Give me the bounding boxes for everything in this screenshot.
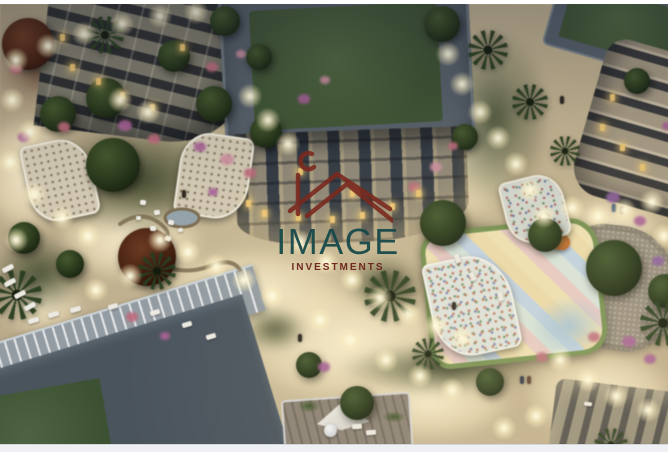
lit-window — [600, 124, 605, 131]
flower-bed — [160, 332, 170, 340]
tree — [158, 40, 190, 72]
pedestrian — [527, 376, 531, 384]
scene — [0, 4, 668, 444]
lit-window — [180, 44, 185, 51]
terrace-furniture — [366, 430, 376, 436]
lit-window — [640, 164, 645, 171]
path-light — [373, 347, 399, 373]
path-light — [337, 327, 363, 353]
flower-bed — [634, 216, 646, 226]
path-light — [611, 197, 637, 223]
flower-bed — [244, 168, 256, 178]
tree — [210, 6, 240, 36]
lit-window — [60, 34, 65, 41]
path-light — [231, 267, 257, 293]
path-light — [21, 181, 47, 207]
path-light — [83, 277, 109, 303]
flower-bed — [662, 122, 668, 130]
terrace-furniture — [584, 402, 592, 407]
flower-bed — [588, 332, 600, 342]
terrace-furniture — [352, 424, 362, 430]
palm-tree — [138, 252, 176, 290]
tree — [476, 368, 504, 396]
path-light — [491, 415, 517, 441]
path-light — [135, 99, 161, 125]
tree — [624, 68, 650, 94]
path-light — [449, 325, 475, 351]
path-light — [147, 4, 173, 29]
palm-tree — [512, 84, 548, 120]
terrace-furniture — [136, 216, 141, 220]
lit-window — [96, 78, 101, 85]
lit-window — [296, 214, 301, 221]
flower-bed — [448, 142, 458, 150]
lit-window — [298, 168, 303, 175]
tree — [246, 44, 272, 70]
screenshot-frame: IMAGE INVESTMENTS — [0, 0, 668, 452]
lit-window — [416, 190, 421, 197]
flower-bed — [320, 76, 330, 84]
path-light — [255, 107, 281, 133]
path-light — [287, 229, 313, 255]
path-light — [49, 205, 75, 231]
path-light — [3, 47, 29, 73]
path-light — [523, 403, 549, 429]
flower-bed — [208, 188, 218, 196]
path-light — [423, 313, 449, 339]
tree — [340, 386, 374, 420]
path-light — [635, 397, 661, 423]
flower-bed — [430, 162, 442, 172]
path-light — [237, 83, 263, 109]
flower-bed — [58, 122, 70, 132]
path-light — [531, 203, 557, 229]
bottom-border — [0, 444, 668, 452]
flower-bed — [206, 62, 218, 72]
pedestrian — [182, 190, 186, 198]
hedge — [380, 410, 408, 424]
terrace-furniture — [154, 210, 161, 216]
flower-bed — [652, 256, 664, 266]
path-light — [147, 227, 173, 253]
flower-bed — [236, 50, 246, 58]
lit-window — [350, 190, 355, 197]
palm-tree — [550, 136, 580, 166]
pedestrian — [452, 302, 456, 310]
flower-bed — [644, 354, 656, 364]
path-light — [307, 307, 333, 333]
path-light — [117, 263, 143, 289]
lit-window — [262, 210, 267, 217]
path-light — [203, 253, 229, 279]
flower-bed — [126, 312, 138, 322]
path-light — [467, 99, 493, 125]
path-light — [3, 227, 29, 253]
path-light — [547, 347, 573, 373]
path-light — [339, 267, 365, 293]
path-light — [313, 249, 339, 275]
path-light — [559, 195, 585, 221]
path-light — [75, 223, 101, 249]
tree — [420, 200, 466, 246]
compound-render-photo: IMAGE INVESTMENTS — [0, 4, 668, 444]
tree — [586, 240, 642, 296]
path-light — [575, 367, 601, 393]
hedge — [296, 398, 322, 414]
path-light — [175, 239, 201, 265]
palm-tree — [468, 30, 508, 70]
lit-window — [330, 216, 335, 223]
roof-dome — [324, 424, 337, 437]
path-light — [639, 189, 665, 215]
pedestrian — [520, 376, 524, 384]
path-light — [395, 301, 421, 327]
lit-window — [610, 94, 615, 101]
flower-bed — [318, 362, 330, 372]
path-light — [435, 41, 461, 67]
path-light — [107, 87, 133, 113]
lit-window — [620, 144, 625, 151]
path-light — [407, 363, 433, 389]
path-light — [367, 285, 393, 311]
path-light — [517, 177, 543, 203]
path-light — [603, 383, 629, 409]
lit-window — [390, 203, 395, 210]
path-light — [71, 21, 97, 47]
path-light — [439, 377, 465, 403]
lit-window — [360, 212, 365, 219]
flower-bed — [194, 142, 206, 152]
tree — [56, 250, 84, 278]
tree — [196, 86, 232, 122]
tree — [86, 138, 140, 192]
flower-bed — [298, 94, 310, 104]
path-light — [35, 33, 61, 59]
tree — [424, 6, 460, 42]
path-light — [503, 151, 529, 177]
flower-bed — [148, 134, 160, 144]
lit-window — [246, 200, 251, 207]
pedestrian — [560, 96, 564, 104]
terrace-furniture — [140, 200, 147, 206]
path-light — [485, 125, 511, 151]
path-light — [0, 87, 25, 113]
path-light — [259, 283, 285, 309]
path-light — [585, 203, 611, 229]
path-light — [17, 119, 43, 145]
path-light — [449, 71, 475, 97]
pedestrian — [298, 334, 302, 342]
terrace-furniture — [167, 219, 174, 225]
path-light — [109, 11, 135, 37]
path-light — [275, 131, 301, 157]
lit-window — [70, 64, 75, 71]
